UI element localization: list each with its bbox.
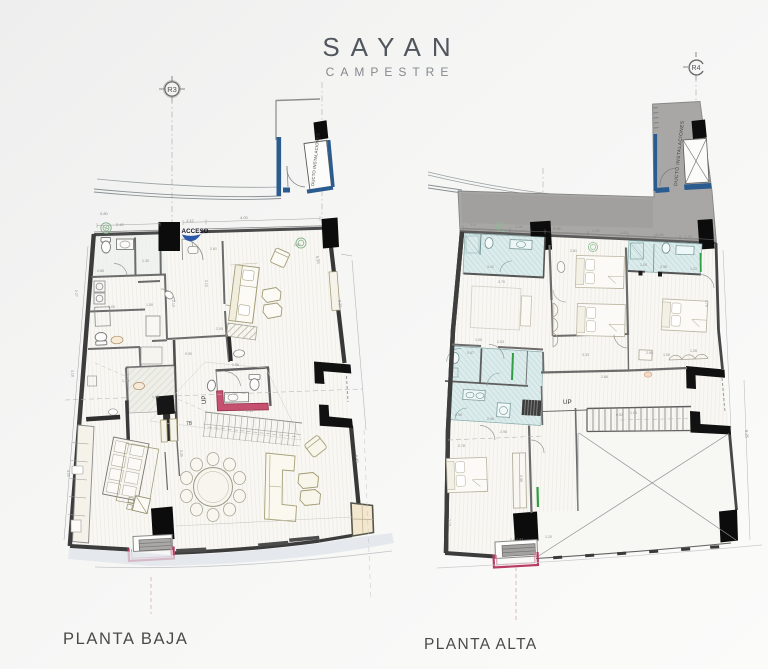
svg-text:2.27: 2.27 (74, 290, 79, 297)
svg-text:SAYAN: SAYAN (322, 32, 461, 62)
svg-text:2.13: 2.13 (171, 300, 175, 307)
svg-text:1.60: 1.60 (592, 228, 601, 233)
svg-text:3.70: 3.70 (498, 280, 505, 284)
svg-text:UP: UP (563, 399, 572, 406)
svg-text:3.33: 3.33 (582, 353, 589, 357)
svg-text:1.26: 1.26 (690, 349, 697, 353)
svg-text:PLANTA ALTA: PLANTA ALTA (424, 636, 538, 653)
svg-text:1.06: 1.06 (630, 411, 637, 415)
svg-text:R4: R4 (692, 65, 701, 72)
svg-text:2.4-0.97: 2.4-0.97 (510, 538, 523, 542)
svg-text:2.05: 2.05 (216, 327, 223, 331)
svg-text:5.96: 5.96 (553, 226, 562, 231)
svg-text:0.67: 0.67 (467, 351, 474, 355)
svg-text:2.96: 2.96 (500, 430, 507, 434)
svg-text:1.00: 1.00 (640, 263, 647, 267)
svg-text:6.25: 6.25 (744, 430, 750, 439)
svg-text:2.10: 2.10 (447, 519, 451, 526)
svg-text:1.62: 1.62 (152, 395, 159, 399)
svg-text:1.00: 1.00 (475, 338, 482, 342)
svg-text:0.90: 0.90 (185, 352, 192, 356)
svg-text:7B: 7B (186, 421, 193, 427)
svg-text:2.65: 2.65 (646, 351, 653, 355)
svg-text:1.8: 1.8 (470, 222, 476, 227)
svg-text:2.96: 2.96 (660, 265, 667, 269)
svg-text:2.45: 2.45 (519, 475, 523, 482)
svg-text:0.78: 0.78 (458, 444, 465, 448)
svg-text:UP: UP (202, 396, 208, 404)
svg-text:3.15: 3.15 (204, 280, 208, 287)
svg-text:1.00: 1.00 (663, 353, 670, 357)
svg-text:3.10: 3.10 (70, 370, 75, 377)
svg-text:ACCESO: ACCESO (182, 228, 209, 235)
svg-text:R3: R3 (167, 85, 177, 94)
svg-text:2.06: 2.06 (487, 417, 494, 421)
svg-text:PLANTA BAJA: PLANTA BAJA (63, 630, 189, 648)
svg-text:3.35: 3.35 (179, 450, 183, 457)
svg-text:1.40: 1.40 (122, 379, 129, 383)
svg-text:3.42: 3.42 (487, 265, 494, 269)
svg-text:2.81: 2.81 (570, 249, 577, 253)
svg-text:0.96: 0.96 (455, 413, 462, 417)
svg-text:6.40: 6.40 (354, 455, 360, 464)
svg-text:2.30: 2.30 (684, 234, 693, 239)
svg-text:0.85: 0.85 (97, 269, 104, 273)
svg-text:0.80: 0.80 (100, 211, 109, 216)
svg-text:1.12: 1.12 (186, 218, 195, 223)
svg-text:3.70: 3.70 (704, 300, 709, 307)
svg-text:1.30: 1.30 (142, 259, 149, 263)
svg-text:1.22: 1.22 (690, 267, 697, 271)
svg-text:2.61: 2.61 (210, 247, 217, 251)
svg-text:4.00: 4.00 (240, 215, 249, 220)
svg-text:CAMPESTRE: CAMPESTRE (326, 65, 455, 79)
svg-text:2.42: 2.42 (116, 222, 125, 227)
svg-text:1.90: 1.90 (515, 224, 524, 229)
svg-text:0.52: 0.52 (616, 413, 623, 417)
svg-text:2.81: 2.81 (294, 243, 301, 247)
svg-text:1.50: 1.50 (146, 303, 153, 307)
svg-text:1.20: 1.20 (545, 535, 552, 539)
svg-text:2.03: 2.03 (497, 340, 504, 344)
svg-text:1.00: 1.00 (108, 305, 115, 309)
svg-text:2.86: 2.86 (601, 375, 608, 379)
svg-text:0.46: 0.46 (656, 232, 665, 237)
svg-text:2.60: 2.60 (620, 230, 629, 235)
svg-text:4.05: 4.05 (66, 470, 71, 477)
svg-text:0.95: 0.95 (246, 409, 253, 413)
svg-text:1.98: 1.98 (232, 363, 239, 367)
